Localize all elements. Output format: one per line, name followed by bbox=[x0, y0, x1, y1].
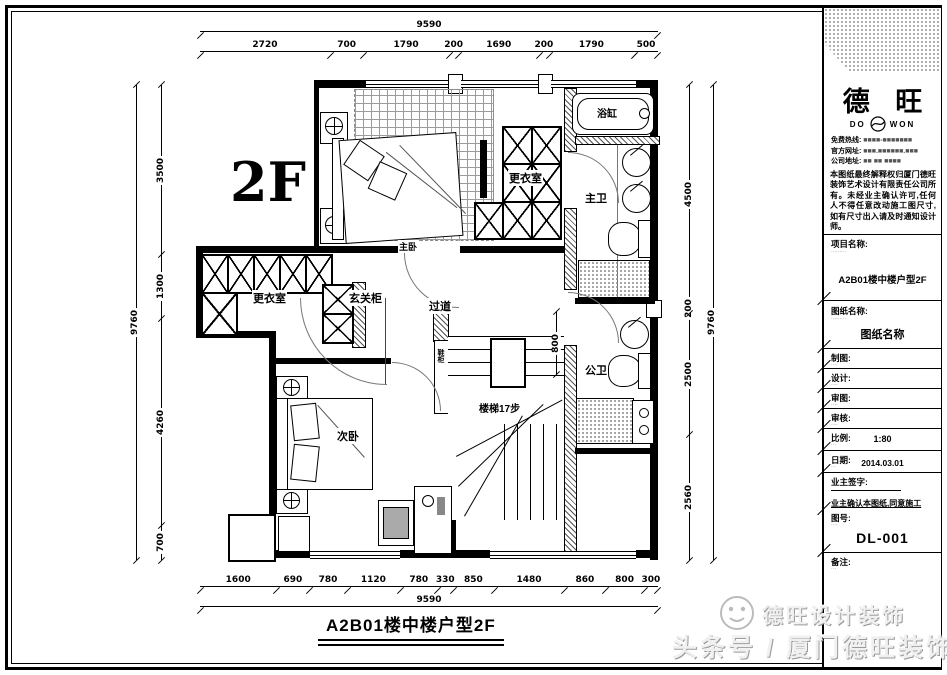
brand-en-left: DO bbox=[850, 120, 866, 129]
dim-right-total: 9760 bbox=[703, 85, 723, 560]
contact-label: 官方网址: bbox=[831, 148, 861, 155]
wall-right bbox=[650, 80, 658, 560]
dimension-value: 780 bbox=[319, 576, 338, 587]
contact-block: 免费热线: ■■■■-■■■■■■■ 官方网址: ■■■.■■■■■■.■■■ … bbox=[831, 136, 935, 168]
shower-mat bbox=[576, 398, 634, 444]
dimension-value: 700 bbox=[157, 532, 166, 555]
dimension-value: 9590 bbox=[416, 596, 441, 607]
washbasin bbox=[622, 184, 651, 213]
dimension-value: 9760 bbox=[709, 308, 718, 337]
globe-icon bbox=[870, 116, 886, 132]
cabinet-cell bbox=[503, 202, 532, 239]
contact-label: 免费热线: bbox=[831, 137, 861, 144]
lamp-icon bbox=[283, 492, 300, 509]
scale-value: 1:80 bbox=[824, 434, 941, 444]
tv-panel bbox=[480, 140, 487, 198]
dimension-segment: 300 bbox=[644, 568, 658, 587]
toilet-tank bbox=[638, 353, 651, 389]
brand-en-right: WON bbox=[890, 120, 916, 129]
dimension-value: 4260 bbox=[157, 408, 166, 437]
dimension-segment: 2560 bbox=[679, 435, 700, 560]
cabinet-cell bbox=[202, 293, 237, 335]
confirm-note: 业主确认本图纸,同意施工 bbox=[831, 498, 935, 509]
floor-label: 2F bbox=[230, 150, 306, 214]
signature-line bbox=[831, 490, 901, 491]
window bbox=[551, 80, 636, 88]
toilet-bowl bbox=[608, 222, 642, 256]
room-label-dressing-right: 更衣室 bbox=[508, 170, 543, 186]
brand-logo-cn: 德 旺 bbox=[824, 80, 941, 119]
dimension-value: 3500 bbox=[157, 156, 166, 185]
lamp-icon bbox=[325, 117, 343, 135]
fixture-box bbox=[632, 400, 654, 444]
tb-divider bbox=[824, 450, 941, 451]
dimension-segment: 1690 bbox=[458, 32, 539, 52]
remark-sub: ··· bbox=[831, 566, 836, 572]
wall bbox=[320, 246, 404, 253]
dim-bottom-segments: 160069078011207803308501480860800300 bbox=[200, 568, 658, 587]
contact-row: 公司地址: ■■ ■■ ■■■■ bbox=[831, 157, 935, 168]
owner-sign-label: 业主签字: bbox=[831, 476, 868, 488]
wall bbox=[636, 550, 658, 558]
room-label-public-bath: 公卫 bbox=[584, 362, 608, 378]
dimension-value: 500 bbox=[637, 41, 656, 52]
dimension-value: 2500 bbox=[685, 360, 694, 389]
bathtub-drain bbox=[639, 108, 650, 119]
tb-divider bbox=[824, 348, 941, 349]
cabinet-cell bbox=[475, 203, 503, 239]
wall bbox=[314, 80, 319, 252]
dimension-value: 700 bbox=[337, 41, 356, 52]
room-label-dressing-left: 更衣室 bbox=[252, 290, 287, 306]
shoe-cabinet-label: 鞋柜 bbox=[437, 349, 444, 363]
cabinet-cell bbox=[532, 202, 561, 239]
dimension-value: 1600 bbox=[226, 576, 251, 587]
sheet-name-value: 图纸名称 bbox=[824, 326, 941, 342]
dimension-value: 330 bbox=[436, 576, 455, 587]
dimension-value: 1120 bbox=[361, 576, 386, 587]
room-label-master-bedroom: 主卧 bbox=[398, 240, 418, 253]
desk-chair bbox=[383, 507, 409, 539]
room-label-second-bedroom: 次卧 bbox=[336, 428, 360, 444]
dimension-segment: 330 bbox=[437, 568, 453, 587]
control-knob bbox=[639, 408, 649, 418]
drawing-no-value: DL-001 bbox=[824, 530, 941, 546]
wall-masonry bbox=[564, 208, 577, 290]
dim-left-segments: 350013004260700 bbox=[151, 85, 172, 560]
dimension-segment: 9590 bbox=[200, 589, 658, 607]
room-label-entry-cabinet: 玄关柜 bbox=[348, 290, 383, 306]
side-table bbox=[278, 516, 310, 552]
dimension-segment: 200 bbox=[539, 32, 549, 52]
dimension-value: 4500 bbox=[685, 180, 694, 209]
dimension-segment: 9760 bbox=[703, 85, 723, 560]
dimension-value: 1790 bbox=[394, 41, 419, 52]
washbasin bbox=[622, 148, 651, 177]
cabinet-cell bbox=[532, 127, 561, 164]
dimension-segment: 4500 bbox=[679, 85, 700, 304]
room-label-master-bath: 主卫 bbox=[584, 190, 608, 206]
dimension-segment: 780 bbox=[400, 568, 437, 587]
dimension-value: 780 bbox=[409, 576, 428, 587]
plan-title: A2B01楼中楼户型2F bbox=[318, 611, 504, 641]
dimension-segment: 1790 bbox=[363, 32, 448, 52]
dimension-value: 850 bbox=[464, 576, 483, 587]
tb-divider bbox=[824, 428, 941, 429]
dimension-value: 690 bbox=[283, 576, 302, 587]
brand-logo-en: DO WON bbox=[824, 116, 941, 132]
dimension-segment: 860 bbox=[564, 568, 605, 587]
second-bed bbox=[287, 398, 373, 490]
wall bbox=[575, 448, 655, 454]
wardrobe-left-top bbox=[201, 254, 333, 294]
wardrobe-right-ext bbox=[474, 202, 504, 240]
dimension-value: 1300 bbox=[157, 272, 166, 301]
control-knob bbox=[639, 425, 649, 435]
dim-top-total: 9590 bbox=[200, 12, 658, 32]
dimension-segment: 1120 bbox=[347, 568, 400, 587]
window bbox=[490, 551, 636, 559]
cabinet-cell bbox=[254, 255, 280, 293]
room-label-stairs: 楼梯17步 bbox=[478, 400, 521, 415]
dimension-value: 2560 bbox=[685, 483, 694, 512]
dimension-segment: 1480 bbox=[494, 568, 565, 587]
shower-mat bbox=[578, 260, 650, 298]
title-block: 德 旺 DO WON 免费热线: ■■■■-■■■■■■■ 官方网址: ■■■.… bbox=[822, 8, 941, 667]
tb-divider bbox=[824, 368, 941, 369]
tb-divider bbox=[824, 472, 941, 473]
wall bbox=[318, 80, 366, 88]
contact-value: ■■■.■■■■■■.■■■ bbox=[863, 148, 918, 155]
blanket-fold bbox=[399, 145, 466, 214]
contact-value: ■■ ■■ ■■■■ bbox=[863, 158, 901, 165]
dimension-value: 1480 bbox=[517, 576, 542, 587]
dimension-segment: 3500 bbox=[151, 85, 172, 255]
dimension-segment: 9760 bbox=[126, 85, 146, 560]
toilet-bowl bbox=[608, 355, 642, 387]
desk bbox=[378, 500, 414, 546]
wall-masonry bbox=[575, 136, 660, 145]
tb-divider bbox=[824, 408, 941, 409]
dimension-value: 9590 bbox=[416, 21, 441, 32]
staircase bbox=[448, 336, 564, 520]
dim-top-segments: 2720700179020016902001790500 bbox=[200, 32, 658, 52]
dimension-segment: 200 bbox=[449, 32, 459, 52]
toilet-tank bbox=[638, 220, 651, 258]
pillow bbox=[290, 403, 320, 442]
dimension-segment: 800 bbox=[605, 568, 643, 587]
dim-left-total: 9760 bbox=[126, 85, 146, 560]
cabinet-cell bbox=[202, 255, 228, 293]
stair-treads-lower bbox=[504, 424, 564, 520]
dimension-segment: 9590 bbox=[200, 12, 658, 32]
wall bbox=[460, 246, 564, 253]
sheet-name-sub: ········· bbox=[831, 316, 846, 322]
smiley-watermark-icon bbox=[718, 594, 756, 632]
dimension-segment: 2720 bbox=[200, 32, 330, 52]
dimension-segment: 2500 bbox=[679, 314, 700, 436]
dimension-value: 9760 bbox=[132, 308, 141, 337]
watermark-line1: 德旺设计装饰 bbox=[762, 600, 906, 630]
drawing-no-sub: ···· bbox=[831, 522, 838, 528]
room-label-hallway: 过道 bbox=[428, 298, 452, 314]
window bbox=[366, 80, 448, 88]
project-name-sub: ········· bbox=[831, 249, 846, 255]
window bbox=[310, 551, 400, 559]
dimension-segment: 800 bbox=[548, 312, 564, 374]
dim-right-segments: 450020025002560 bbox=[679, 85, 700, 560]
master-bed bbox=[339, 132, 464, 244]
window bbox=[461, 80, 538, 88]
contact-row: 免费热线: ■■■■-■■■■■■■ bbox=[831, 136, 935, 147]
tb-divider bbox=[824, 300, 941, 301]
decor-circle bbox=[422, 495, 434, 507]
copyright-note: 本图纸最终解释权归厦门德旺装饰艺术设计有限责任公司所有。未经业主确认许可,任何人… bbox=[830, 170, 936, 232]
dimension-value: 300 bbox=[641, 576, 660, 587]
dimension-segment: 1300 bbox=[151, 255, 172, 318]
wardrobe-left-side bbox=[201, 292, 238, 336]
exterior-ledge bbox=[228, 514, 276, 562]
drawing-sheet: 9590 2720700179020016902001790500 9760 3… bbox=[0, 0, 947, 675]
tb-divider bbox=[824, 234, 941, 235]
tb-divider bbox=[824, 552, 941, 553]
decor-item bbox=[437, 497, 445, 515]
dimension-segment: 690 bbox=[276, 568, 309, 587]
dim-bottom-total: 9590 bbox=[200, 589, 658, 607]
washbasin bbox=[620, 320, 649, 349]
dimension-segment: 780 bbox=[309, 568, 346, 587]
dimension-segment: 700 bbox=[151, 526, 172, 560]
dimension-segment: 700 bbox=[330, 32, 363, 52]
wall bbox=[196, 246, 320, 253]
watermark-line2: 头条号 / 厦门德旺装饰 bbox=[672, 628, 947, 664]
corner-hatch bbox=[824, 8, 941, 72]
cabinet bbox=[414, 486, 452, 554]
contact-value: ■■■■-■■■■■■■ bbox=[863, 137, 912, 144]
stair-well bbox=[490, 338, 526, 388]
lamp-icon bbox=[283, 379, 300, 396]
date-value: 2014.03.01 bbox=[824, 458, 941, 468]
dimension-segment: 500 bbox=[634, 32, 658, 52]
dimension-value: 1790 bbox=[579, 41, 604, 52]
dimension-segment: 850 bbox=[453, 568, 494, 587]
pillow bbox=[290, 444, 320, 483]
dimension-value: 800 bbox=[552, 332, 561, 355]
dim-interior-800: 800 bbox=[548, 312, 564, 374]
dimension-segment: 1790 bbox=[549, 32, 634, 52]
cabinet-cell bbox=[228, 255, 254, 293]
dimension-segment: 1600 bbox=[200, 568, 276, 587]
dimension-value: 1690 bbox=[486, 41, 511, 52]
dimension-value: 860 bbox=[576, 576, 595, 587]
tb-divider bbox=[824, 388, 941, 389]
project-name-value: A2B01楼中楼户型2F bbox=[824, 272, 941, 286]
cabinet-cell bbox=[280, 255, 306, 293]
contact-label: 公司地址: bbox=[831, 158, 861, 165]
dimension-value: 800 bbox=[615, 576, 634, 587]
dimension-segment: 4260 bbox=[151, 319, 172, 526]
contact-row: 官方网址: ■■■.■■■■■■.■■■ bbox=[831, 147, 935, 158]
dimension-value: 2720 bbox=[252, 41, 277, 52]
room-label-bathtub: 浴缸 bbox=[596, 105, 618, 120]
cabinet-cell bbox=[503, 127, 532, 164]
